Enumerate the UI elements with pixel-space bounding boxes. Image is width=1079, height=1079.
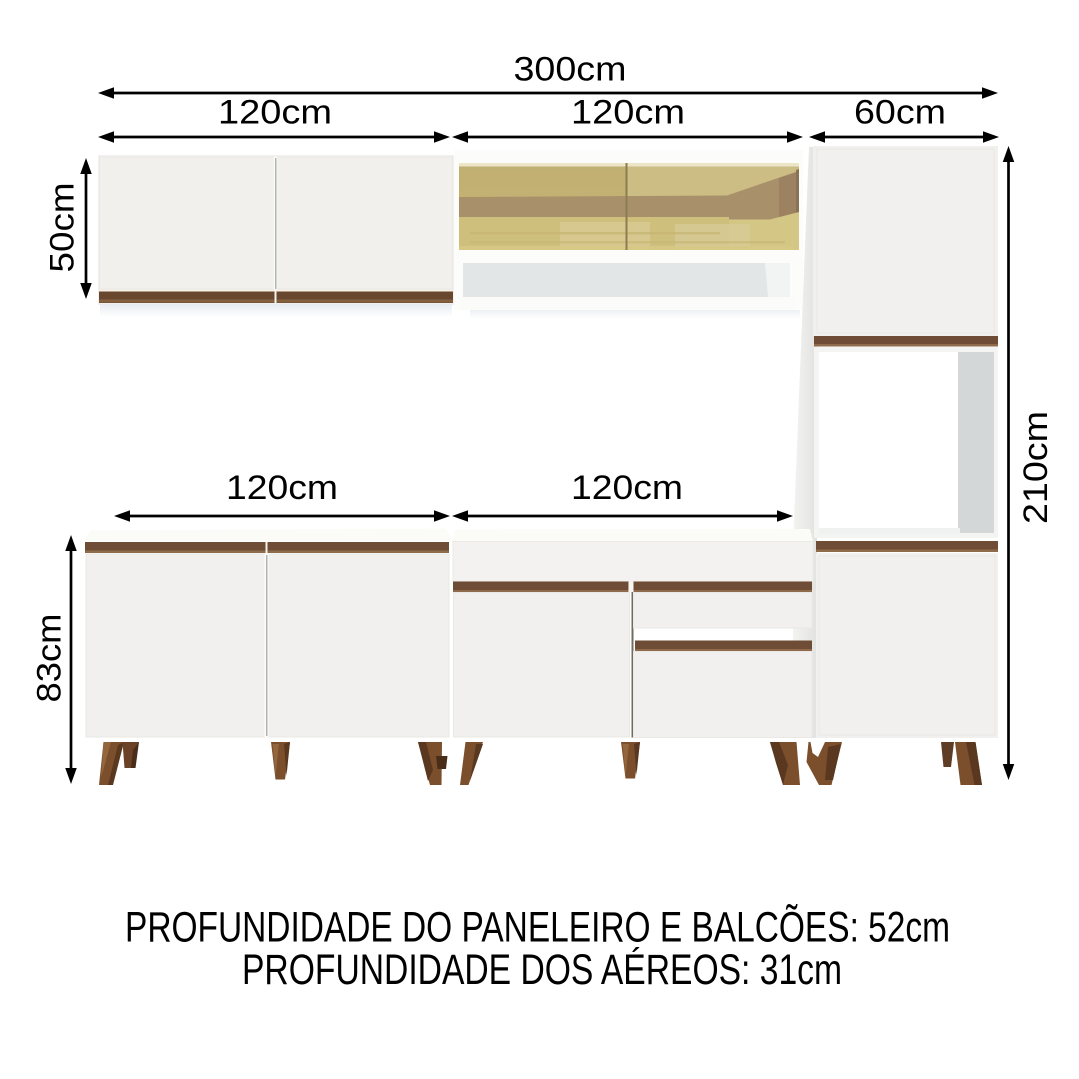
svg-text:210cm: 210cm	[1017, 411, 1055, 524]
svg-text:50cm: 50cm	[44, 183, 82, 273]
svg-text:60cm: 60cm	[854, 94, 946, 132]
svg-text:120cm: 120cm	[571, 469, 683, 507]
svg-text:120cm: 120cm	[218, 94, 332, 132]
svg-text:120cm: 120cm	[571, 94, 685, 132]
svg-text:PROFUNDIDADE DOS AÉREOS: 31cm: PROFUNDIDADE DOS AÉREOS: 31cm	[242, 947, 842, 994]
svg-text:PROFUNDIDADE DO PANELEIRO E BA: PROFUNDIDADE DO PANELEIRO E BALCÕES: 52c…	[125, 904, 950, 952]
svg-text:120cm: 120cm	[226, 469, 338, 507]
svg-text:83cm: 83cm	[31, 614, 69, 703]
svg-text:300cm: 300cm	[514, 51, 627, 89]
